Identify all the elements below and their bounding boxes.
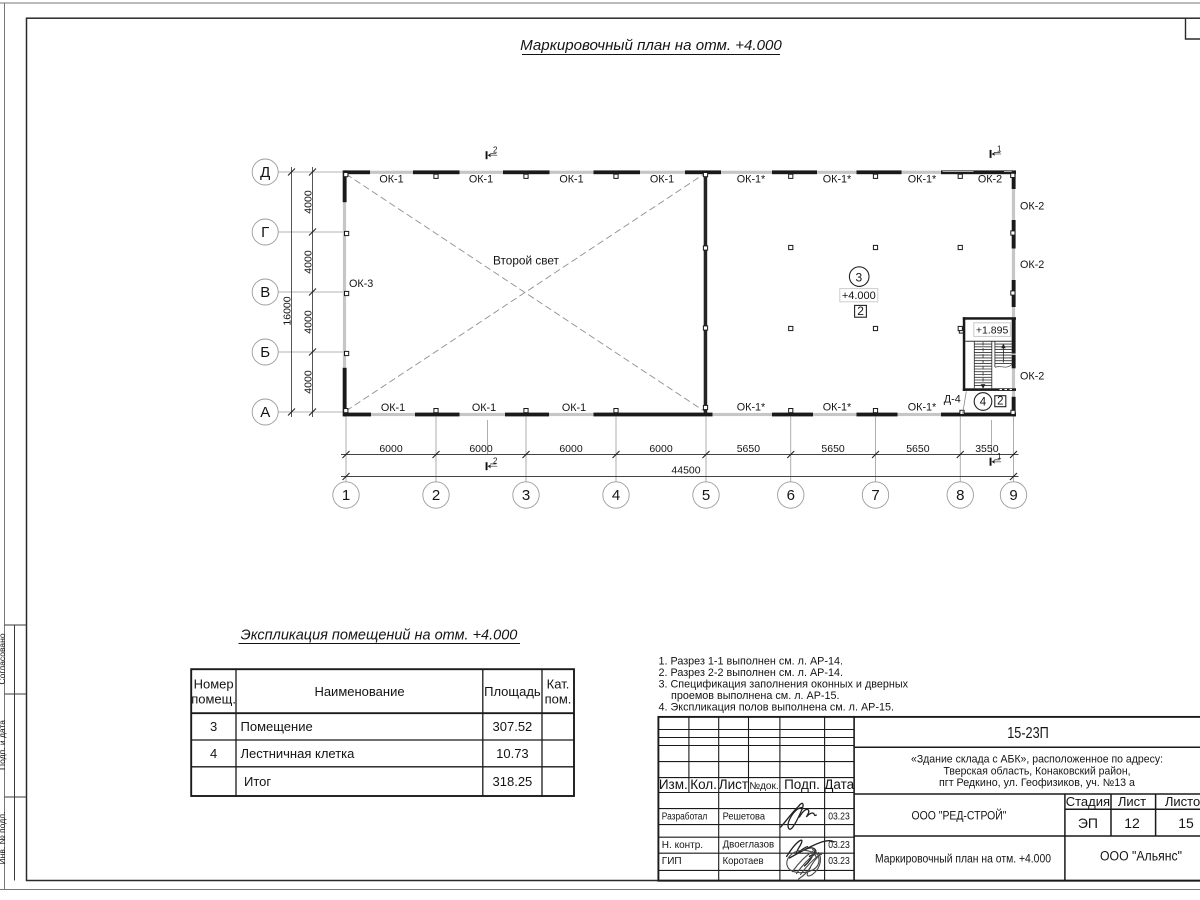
svg-text:2. Разрез 2-2 выполнен см. л.: 2. Разрез 2-2 выполнен см. л. АР-14. [659, 667, 843, 679]
svg-text:5: 5 [702, 487, 710, 504]
svg-text:Площадь: Площадь [484, 684, 541, 699]
svg-text:ОК-1*: ОК-1* [737, 402, 766, 414]
svg-text:3550: 3550 [975, 443, 999, 455]
svg-text:Б: Б [260, 344, 270, 361]
svg-text:Согласовано: Согласовано [0, 633, 7, 684]
svg-text:5650: 5650 [906, 443, 930, 455]
svg-text:ОК-3: ОК-3 [349, 278, 373, 290]
svg-text:1: 1 [997, 144, 1002, 153]
svg-text:ОК-1*: ОК-1* [823, 174, 852, 186]
svg-text:ЭП: ЭП [1078, 815, 1098, 831]
svg-text:пом.: пом. [545, 692, 572, 707]
svg-text:А: А [260, 404, 270, 421]
svg-text:03.23: 03.23 [828, 812, 850, 823]
svg-text:16000: 16000 [282, 296, 294, 325]
svg-text:Двоеглазов: Двоеглазов [723, 839, 775, 850]
svg-text:1. Разрез 1-1 выполнен см. л.: 1. Разрез 1-1 выполнен см. л. АР-14. [659, 656, 843, 668]
svg-text:12: 12 [1124, 815, 1140, 831]
svg-text:44500: 44500 [671, 465, 700, 477]
svg-text:6000: 6000 [559, 443, 583, 455]
svg-text:ОК-2: ОК-2 [1020, 371, 1044, 383]
svg-text:9: 9 [1009, 487, 1017, 504]
svg-text:1: 1 [342, 487, 350, 504]
svg-text:Разработал: Разработал [662, 810, 708, 822]
svg-text:+1.895: +1.895 [976, 324, 1009, 336]
svg-text:Итог: Итог [244, 774, 271, 789]
svg-text:Номер: Номер [194, 677, 234, 692]
svg-text:+4.000: +4.000 [842, 290, 876, 302]
svg-text:Лестничная клетка: Лестничная клетка [241, 746, 356, 761]
svg-text:«Здание склада с АБК», располо: «Здание склада с АБК», расположенное по … [911, 754, 1163, 766]
svg-text:6000: 6000 [379, 443, 403, 455]
svg-text:Инв. № подл.: Инв. № подл. [0, 812, 7, 865]
svg-text:проемов выполнена см. л. АР-15: проемов выполнена см. л. АР-15. [671, 690, 840, 702]
svg-text:Подп.: Подп. [784, 777, 820, 792]
svg-text:3: 3 [522, 487, 530, 504]
svg-text:ОК-1: ОК-1 [381, 402, 405, 414]
svg-text:15: 15 [1178, 815, 1194, 831]
svg-text:4000: 4000 [303, 190, 315, 214]
svg-text:ОК-2: ОК-2 [978, 174, 1002, 186]
svg-text:4000: 4000 [303, 250, 315, 274]
svg-text:5650: 5650 [737, 443, 761, 455]
svg-text:Подп. и дата: Подп. и дата [0, 720, 7, 770]
svg-text:4000: 4000 [303, 370, 315, 394]
svg-text:3: 3 [210, 719, 217, 734]
svg-text:Листов: Листов [1165, 794, 1200, 809]
svg-text:ОК-1: ОК-1 [469, 174, 493, 186]
svg-text:ОК-1: ОК-1 [562, 402, 586, 414]
svg-text:ОК-1: ОК-1 [379, 174, 403, 186]
svg-text:ОК-2: ОК-2 [1020, 201, 1044, 213]
svg-text:пгт Редкино, ул. Геофизиков, у: пгт Редкино, ул. Геофизиков, уч. №13 а [939, 777, 1135, 789]
svg-text:7: 7 [871, 487, 879, 504]
svg-text:ОК-1: ОК-1 [559, 174, 583, 186]
svg-text:4: 4 [210, 746, 217, 761]
svg-text:помещ.: помещ. [191, 692, 236, 707]
svg-text:ОК-1*: ОК-1* [737, 174, 766, 186]
svg-text:ОК-2: ОК-2 [1020, 259, 1044, 271]
svg-text:3: 3 [855, 271, 862, 285]
svg-text:6000: 6000 [469, 443, 493, 455]
svg-text:Дата: Дата [824, 777, 854, 792]
svg-text:В: В [260, 284, 270, 301]
svg-text:Коротаев: Коротаев [723, 856, 764, 867]
svg-text:8: 8 [956, 487, 964, 504]
svg-text:Д-4: Д-4 [944, 394, 961, 406]
svg-text:03.23: 03.23 [828, 856, 850, 867]
svg-text:Маркировочный план на отм. +4.: Маркировочный план на отм. +4.000 [875, 854, 1051, 866]
svg-text:ОК-1: ОК-1 [650, 174, 674, 186]
svg-text:Наименование: Наименование [314, 684, 404, 699]
svg-text:03.23: 03.23 [828, 840, 850, 851]
svg-text:Лист: Лист [719, 777, 748, 792]
svg-text:10.73: 10.73 [496, 746, 529, 761]
svg-text:Д: Д [260, 164, 270, 181]
svg-text:ОК-1*: ОК-1* [908, 402, 937, 414]
svg-text:307.52: 307.52 [493, 719, 533, 734]
svg-text:Н. контр.: Н. контр. [662, 840, 703, 851]
svg-text:Решетова: Решетова [723, 811, 766, 822]
svg-text:4: 4 [612, 487, 620, 504]
svg-text:4. Экспликация полов выполнена: 4. Экспликация полов выполнена см. л. АР… [659, 702, 894, 714]
svg-text:ООО "РЕД-СТРОЙ": ООО "РЕД-СТРОЙ" [912, 807, 1007, 822]
svg-text:Тверская область, Конаковский: Тверская область, Конаковский район, [944, 766, 1131, 778]
svg-text:4: 4 [980, 397, 987, 409]
svg-text:2: 2 [432, 487, 440, 504]
svg-text:Лист: Лист [1118, 794, 1146, 809]
svg-text:318.25: 318.25 [493, 774, 533, 789]
svg-text:Помещение: Помещение [241, 719, 313, 734]
svg-text:Кол.: Кол. [690, 777, 717, 792]
svg-text:15-23П: 15-23П [1007, 725, 1049, 742]
svg-text:Изм.: Изм. [659, 777, 688, 792]
svg-text:ОК-1*: ОК-1* [908, 174, 937, 186]
svg-text:ОК-1*: ОК-1* [823, 402, 852, 414]
svg-text:Стадия: Стадия [1066, 794, 1110, 809]
svg-text:Экспликация помещений на отм.: Экспликация помещений на отм. +4.000 [241, 628, 518, 644]
svg-text:Кат.: Кат. [547, 677, 570, 692]
svg-text:ОК-1: ОК-1 [472, 402, 496, 414]
svg-text:№док.: №док. [749, 781, 778, 792]
svg-text:2: 2 [493, 146, 498, 155]
svg-text:ООО "Альянс": ООО "Альянс" [1100, 849, 1182, 864]
svg-text:Маркировочный план на отм. +4.: Маркировочный план на отм. +4.000 [520, 37, 782, 54]
svg-text:6000: 6000 [649, 443, 673, 455]
svg-text:Г: Г [261, 224, 269, 241]
svg-text:6: 6 [787, 487, 795, 504]
svg-text:5650: 5650 [821, 443, 845, 455]
svg-text:3. Спецификация заполнения око: 3. Спецификация заполнения оконных и две… [659, 679, 909, 691]
svg-text:4000: 4000 [303, 310, 315, 334]
svg-text:Второй свет: Второй свет [493, 253, 559, 267]
svg-text:2: 2 [997, 396, 1003, 408]
svg-text:ГИП: ГИП [662, 856, 682, 867]
svg-text:2: 2 [857, 304, 864, 318]
